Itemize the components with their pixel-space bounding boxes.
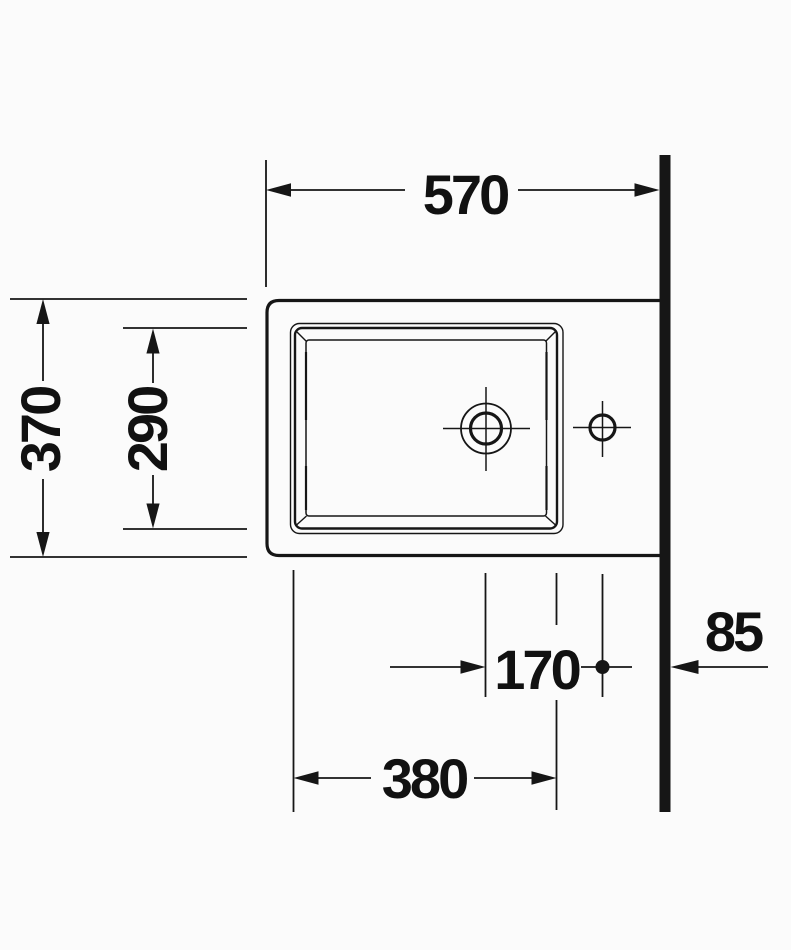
dim-drain-to-tap-group: 170: [390, 638, 632, 701]
drain-group: [443, 387, 530, 471]
wall-line: [660, 155, 671, 812]
tap-hole-group: [573, 401, 631, 457]
arrowhead-290-up: [146, 329, 159, 354]
basin-corner-bevel-tr: [546, 332, 556, 342]
basin-corner-bevel-tl: [297, 332, 307, 342]
basin-plan-drawing: 570 370 290 170: [0, 0, 791, 950]
arrowhead-370-up: [36, 299, 49, 324]
arrowhead-290-down: [146, 504, 159, 529]
technical-drawing-page: 570 370 290 170: [0, 0, 791, 950]
dim-label-85: 85: [705, 600, 763, 663]
arrowhead-380-right: [532, 771, 557, 785]
dim-label-380: 380: [382, 747, 467, 810]
dim-label-170: 170: [494, 638, 579, 701]
dim-label-370: 370: [9, 387, 72, 472]
arrowhead-570-left: [266, 183, 291, 197]
dim-label-570: 570: [423, 163, 508, 226]
dim-basin-depth-group: 290: [116, 328, 247, 529]
dim-label-290: 290: [116, 387, 179, 472]
dim-tap-to-wall-group: 85: [671, 600, 769, 674]
arrowhead-370-down: [36, 532, 49, 557]
wall-group: [660, 155, 671, 812]
dim-overall-width-group: 570: [266, 160, 660, 287]
basin-corner-bevel-br: [546, 516, 556, 525]
arrowhead-85-left: [671, 660, 699, 674]
arrowhead-380-left: [294, 771, 319, 785]
basin-corner-bevel-bl: [297, 516, 307, 525]
dim-basin-width-group: 380: [294, 747, 557, 810]
arrowhead-170-right: [461, 660, 486, 674]
reference-dot-tap-center: [596, 660, 610, 674]
arrowhead-570-right: [635, 183, 660, 197]
